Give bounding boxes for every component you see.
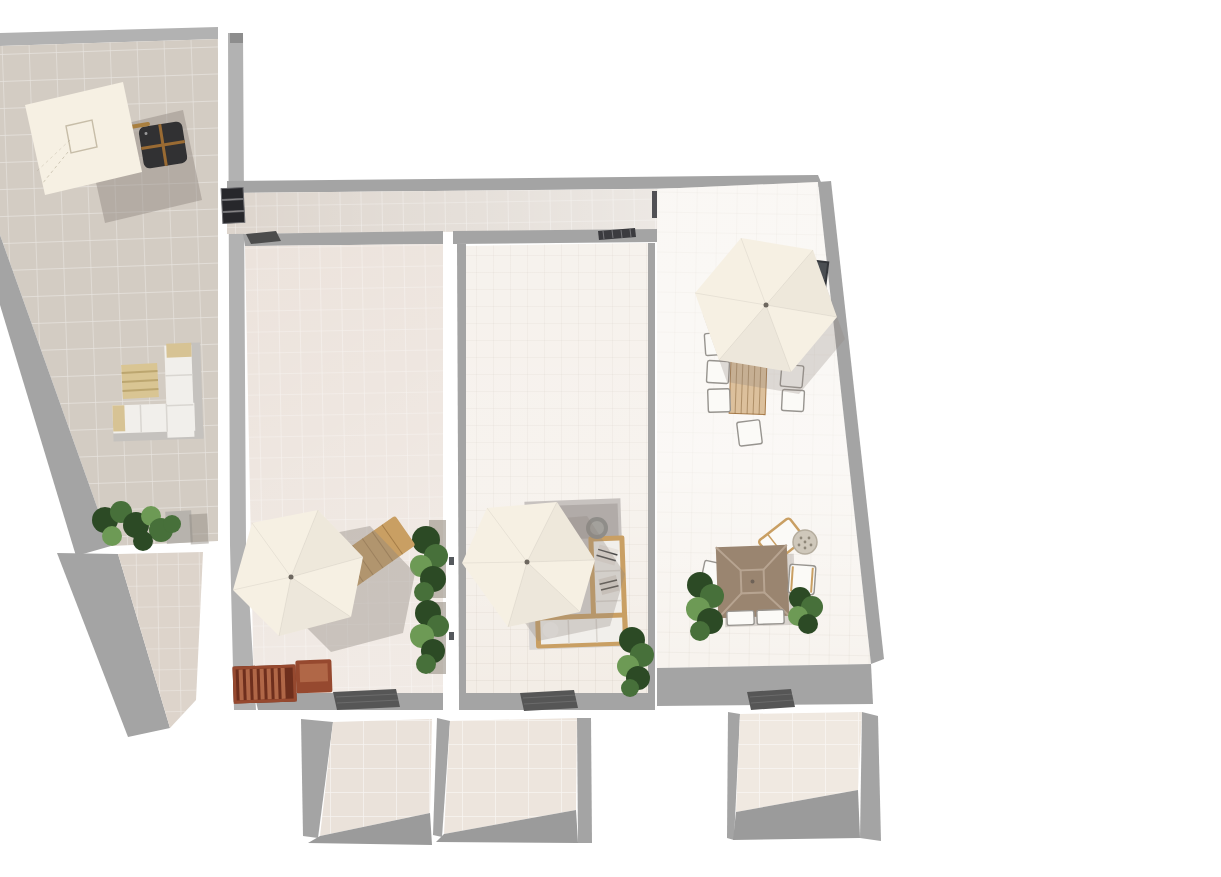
doormat-3[interactable] [747,689,795,710]
room-a [301,719,432,845]
terrace-mid [459,243,655,711]
foliage-blob [798,614,818,634]
doormat-2[interactable] [520,690,578,711]
vent-louver [221,187,244,199]
cushion-divider [140,405,141,433]
dining-chair[interactable] [708,389,731,413]
pouf-dot [804,541,807,544]
woven-pouf[interactable] [793,530,817,554]
planter-shadow [189,514,209,545]
parasol-pole-top [525,560,530,565]
pouf-dot [810,544,813,547]
wall-vents[interactable] [221,187,245,223]
lounge-back-chair[interactable] [727,611,754,626]
foliage-blob [414,582,434,602]
room-b [433,718,592,843]
pouf-dot [808,537,811,540]
door-hinge [449,632,454,640]
floorplan-render [0,0,1221,877]
doormat-base [747,689,795,710]
cushion-tan-end [112,405,125,431]
terrace-left-lower [57,552,203,737]
pouf-dot [800,537,803,540]
room-c-right-wall [860,712,881,841]
room-c [727,712,881,841]
square-parasol[interactable] [716,545,789,618]
foliage-blob [416,654,436,674]
foliage-blob [102,526,122,546]
pouf-dot [798,544,801,547]
terrace-left [0,27,218,556]
doormat-base [333,689,400,710]
foliage-blob [163,515,181,533]
tan-rug[interactable] [121,363,159,399]
cushion-divider [165,375,192,376]
foliage-blob [133,531,153,551]
pouf-dot [804,547,807,550]
dining-chair[interactable] [737,420,763,447]
vent-louver [222,211,245,223]
door-hinge [449,557,454,565]
mid-divider-wall [457,244,466,693]
mid-right-wall-edge [648,243,655,693]
foliage-blob [621,679,639,697]
parasol-pole-top [289,575,294,580]
parasol-pole-top [764,303,769,308]
cushion-divider [166,405,193,406]
vent-louver [222,199,245,211]
doormat-base [520,690,578,711]
strip-sheen [227,189,657,234]
dark-lounge-set[interactable] [138,121,188,169]
crate-solid-top [299,663,328,682]
cushion-divider [166,404,167,432]
lounge-back-chair[interactable] [757,610,784,625]
doormat-1[interactable] [333,689,400,710]
terrace-mid-left [232,244,449,710]
terrace-right [657,181,884,710]
room-b-right-wall [577,718,592,843]
cushion-tan-corner [166,343,191,358]
dividing-wall-cap [230,33,243,43]
foliage-blob [690,621,710,641]
floorplan-stage [0,0,1221,877]
